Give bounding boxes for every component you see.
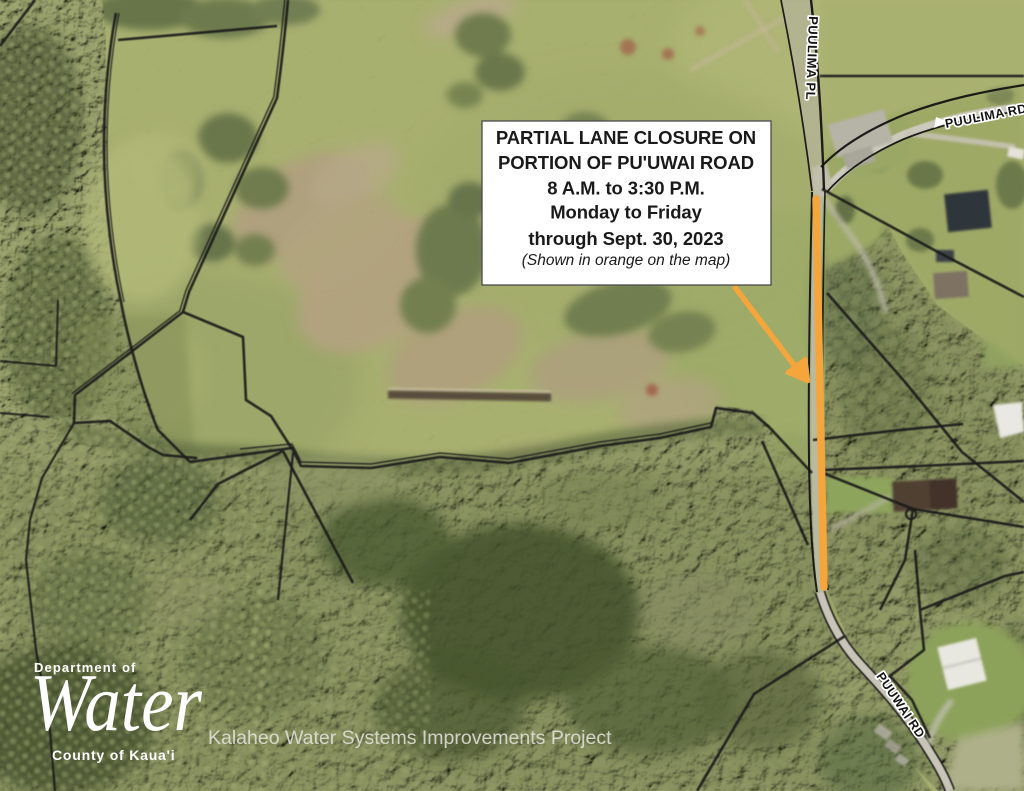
svg-text:PARTIAL LANE CLOSURE ON: PARTIAL LANE CLOSURE ON xyxy=(496,127,756,148)
svg-text:(Shown in orange on the map): (Shown in orange on the map) xyxy=(522,252,731,269)
svg-text:Water: Water xyxy=(30,657,203,748)
svg-text:PORTION OF PU'UWAI ROAD: PORTION OF PU'UWAI ROAD xyxy=(498,152,754,173)
svg-text:Monday to Friday: Monday to Friday xyxy=(550,202,702,223)
svg-text:Kalaheo Water Systems Improvem: Kalaheo Water Systems Improvements Proje… xyxy=(208,727,612,749)
svg-text:PUULIMA PL: PUULIMA PL xyxy=(803,16,821,100)
svg-text:through Sept. 30, 2023: through Sept. 30, 2023 xyxy=(528,228,723,249)
svg-text:8 A.M. to 3:30 P.M.: 8 A.M. to 3:30 P.M. xyxy=(547,178,704,199)
svg-text:County of Kaua'i: County of Kaua'i xyxy=(52,747,175,763)
